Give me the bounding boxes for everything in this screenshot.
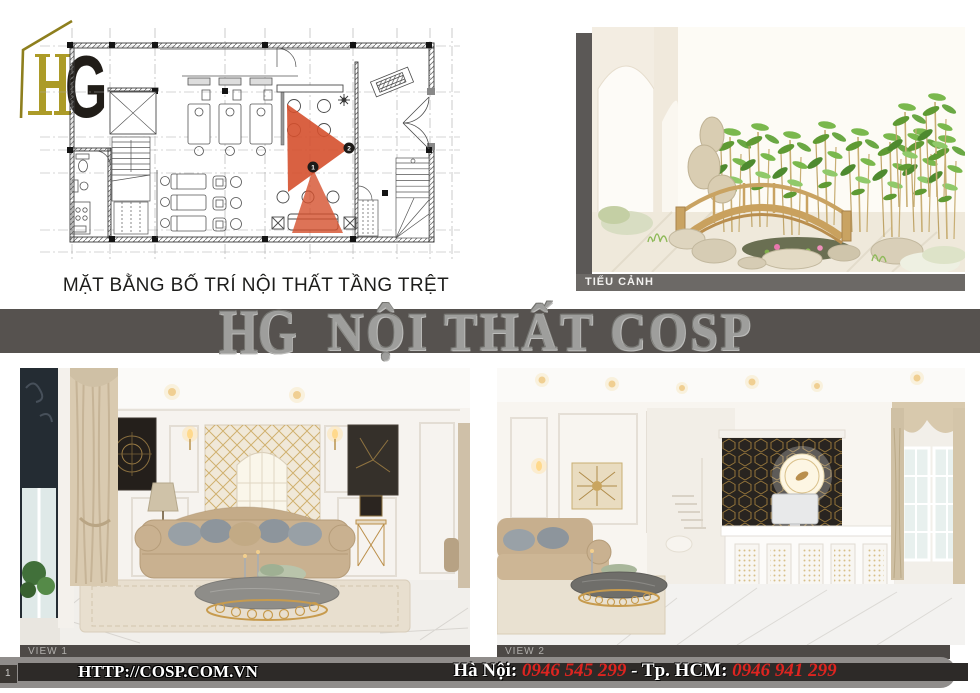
hanoi-label: Hà Nội:	[453, 660, 517, 681]
wall-sconce	[531, 458, 547, 474]
wall-stub	[427, 88, 435, 95]
ceiling	[497, 368, 965, 402]
hcm-label: Tp. HCM:	[642, 660, 728, 681]
accent-chair	[444, 538, 459, 572]
curtain-tail-right	[953, 408, 965, 592]
view1-label: VIEW 1	[20, 645, 470, 657]
floor-plan: 1 2	[38, 26, 462, 264]
closet	[358, 186, 378, 236]
view2-label: VIEW 2	[497, 645, 950, 657]
view1-render	[20, 368, 470, 645]
brand-banner	[0, 309, 980, 353]
artwork-right	[348, 425, 398, 495]
left-window	[20, 368, 74, 645]
svg-text:1: 1	[311, 165, 315, 172]
page-number: 1	[0, 665, 17, 679]
contact-separator: -	[631, 660, 637, 681]
window-wall	[891, 402, 965, 602]
elevator	[110, 92, 156, 134]
floor-plan-caption: MẶT BẰNG BỐ TRÍ NỘI THẤT TẦNG TRỆT	[60, 275, 452, 297]
gold-artwork	[572, 463, 622, 509]
view2-render	[497, 368, 965, 645]
hcm-phone: 0946 941 299	[732, 660, 837, 681]
spa-beds-lower	[157, 170, 242, 238]
screen-partition	[281, 92, 284, 145]
garden-label-bar: TIỂU CẢNH	[576, 274, 965, 291]
contact-info: Hà Nội: 0946 545 299 - Tp. HCM: 0946 941…	[385, 660, 905, 682]
plant-icon	[338, 94, 350, 106]
svg-text:2: 2	[347, 146, 351, 153]
garden-label: TIỂU CẢNH	[576, 274, 965, 288]
page-number-tab: 1	[0, 665, 17, 683]
stairs-left	[112, 137, 150, 234]
website-url: HTTP://COSP.COM.VN	[40, 663, 296, 681]
hanoi-phone: 0946 545 299	[522, 660, 627, 681]
stairs-right	[396, 158, 429, 238]
curtain-tail-left	[891, 408, 904, 580]
garden-render	[592, 27, 965, 272]
presentation-board: G	[0, 0, 980, 693]
curtain-right	[458, 423, 470, 588]
bathroom	[72, 151, 110, 234]
mirror-alcove	[205, 425, 320, 520]
curtain-left	[70, 368, 118, 586]
garden-side-strip	[576, 33, 592, 274]
